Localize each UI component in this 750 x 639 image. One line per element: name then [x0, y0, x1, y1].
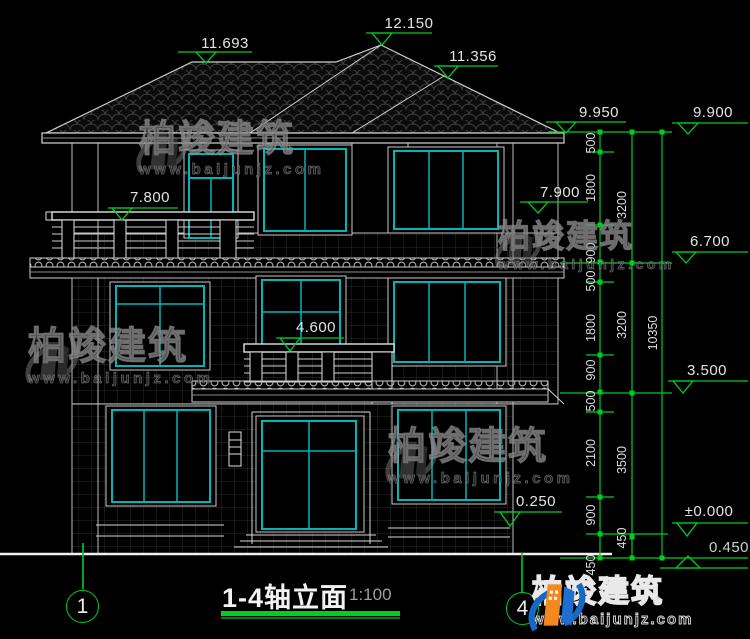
- title-underline-shadow: [221, 617, 400, 619]
- level-mark-porch: 0.250: [507, 494, 565, 510]
- level-mark-floor3-right: 7.900: [531, 185, 589, 201]
- dim-inner-1: 1800: [584, 158, 598, 218]
- level-mark-ridge-main: 12.150: [380, 16, 438, 32]
- level-mark-eave-right: 9.900: [684, 105, 742, 121]
- axis-bubble-4: 4: [506, 592, 539, 625]
- dim-mid-0: 3200: [615, 175, 629, 235]
- dim-overall: 10350: [646, 303, 660, 363]
- axis-bubble-1: 1: [66, 590, 99, 623]
- dim-mid-1: 3200: [615, 295, 629, 355]
- eave2: [30, 258, 564, 278]
- level-mark-balcony3: 7.800: [121, 190, 179, 206]
- dim-inner-6: 500: [584, 371, 598, 431]
- level-mark-foundation: 0.450: [700, 540, 750, 556]
- level-mark-floor2-right: 6.700: [681, 234, 739, 250]
- dim-mid-2: 3500: [615, 430, 629, 490]
- floor1: [72, 404, 513, 554]
- level-mark-floor1-right: 3.500: [678, 363, 736, 379]
- level-mark-eave-left: 9.950: [570, 105, 628, 121]
- axis-label-1: 1: [77, 595, 89, 618]
- drawing-title: 1-4轴立面: [222, 576, 348, 615]
- level-mark-ridge-right: 11.356: [444, 49, 502, 65]
- elevation-line-work: [0, 0, 750, 639]
- dim-inner-7: 2100: [584, 423, 598, 483]
- cad-elevation-screenshot: 11.693 12.150 11.356 9.950 9.900 7.800 7…: [0, 0, 750, 639]
- title-underline: [221, 611, 400, 616]
- dim-inner-9: 450: [584, 535, 598, 595]
- level-mark-ground: ±0.000: [680, 504, 738, 520]
- level-mark-balcony2: 4.600: [287, 320, 345, 336]
- dim-mid-3: 450: [615, 508, 629, 568]
- drawing-scale: 1:100: [349, 585, 392, 605]
- axis-label-4: 4: [517, 597, 529, 620]
- level-mark-ridge-left: 11.693: [196, 36, 254, 52]
- porch-awning: [192, 381, 564, 404]
